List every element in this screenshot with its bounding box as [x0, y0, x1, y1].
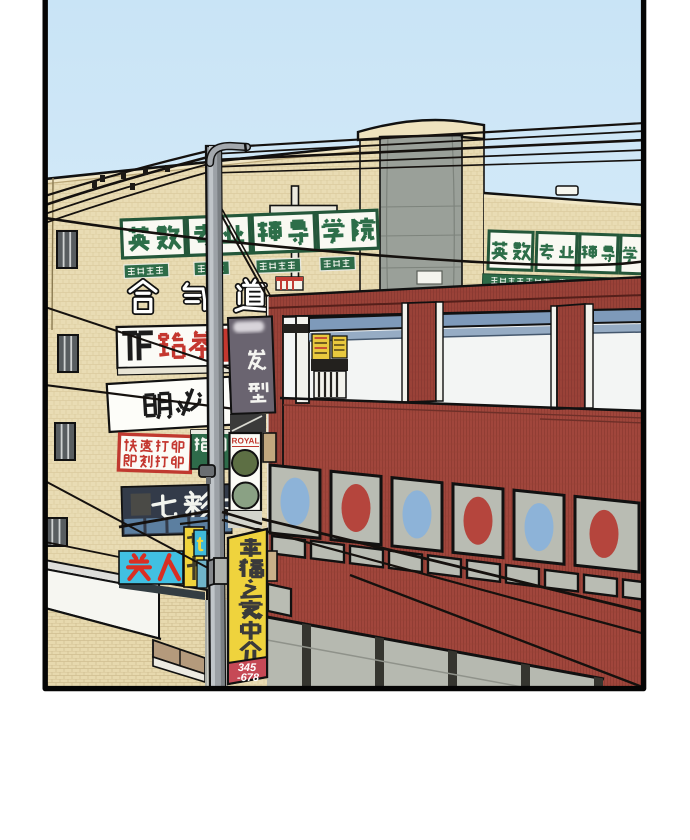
- svg-text:t: t: [197, 533, 204, 556]
- svg-text:ROYAL: ROYAL: [232, 437, 260, 446]
- svg-text:-678: -678: [237, 672, 260, 684]
